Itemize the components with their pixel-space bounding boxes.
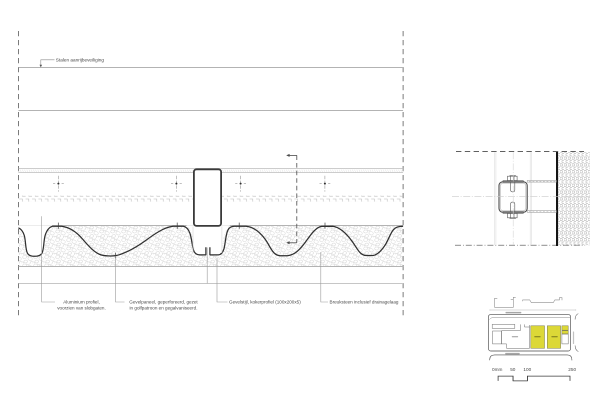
svg-text:voorzien van slobgaten.: voorzien van slobgaten. <box>57 306 106 311</box>
svg-text:Gevelstijl, kokerprofiel (100x: Gevelstijl, kokerprofiel (100x200x5) <box>229 300 301 305</box>
svg-text:Gevelpaneel, geperforeerd, gez: Gevelpaneel, geperforeerd, gezet <box>129 300 198 305</box>
svg-text:50: 50 <box>510 367 516 372</box>
svg-text:100: 100 <box>523 367 531 372</box>
svg-text:0mm: 0mm <box>492 367 503 372</box>
svg-text:250: 250 <box>568 367 576 372</box>
svg-text:Breuksteen inclusief drainagel: Breuksteen inclusief drainagelaag <box>330 300 399 305</box>
svg-text:in golfpatroon en gegalvanisee: in golfpatroon en gegalvaniseerd. <box>130 306 198 311</box>
svg-text:Aluminium profiel,: Aluminium profiel, <box>63 300 100 305</box>
svg-text:Stalen aanrijbeveiliging: Stalen aanrijbeveiliging <box>56 58 105 63</box>
